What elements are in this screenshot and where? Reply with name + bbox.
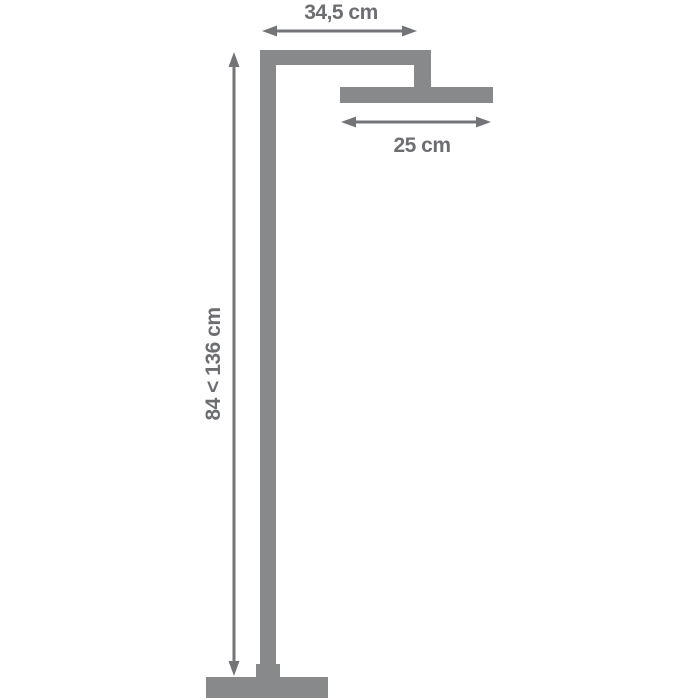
- base-collar: [256, 664, 280, 677]
- top-arm: [260, 50, 431, 65]
- diagram-background: [0, 0, 700, 700]
- head-width-dimension-label: 25 cm: [393, 134, 450, 157]
- base-plate: [206, 677, 328, 698]
- riser-pole: [260, 50, 276, 664]
- head-stem: [414, 65, 431, 88]
- diagram-svg: 34,5 cm 25 cm 84 < 136 cm: [0, 0, 700, 700]
- top-width-dimension-label: 34,5 cm: [304, 1, 378, 24]
- height-dimension-label: 84 < 136 cm: [202, 307, 225, 420]
- shower-head-plate: [340, 87, 493, 103]
- product-dimension-diagram: 34,5 cm 25 cm 84 < 136 cm: [0, 0, 700, 700]
